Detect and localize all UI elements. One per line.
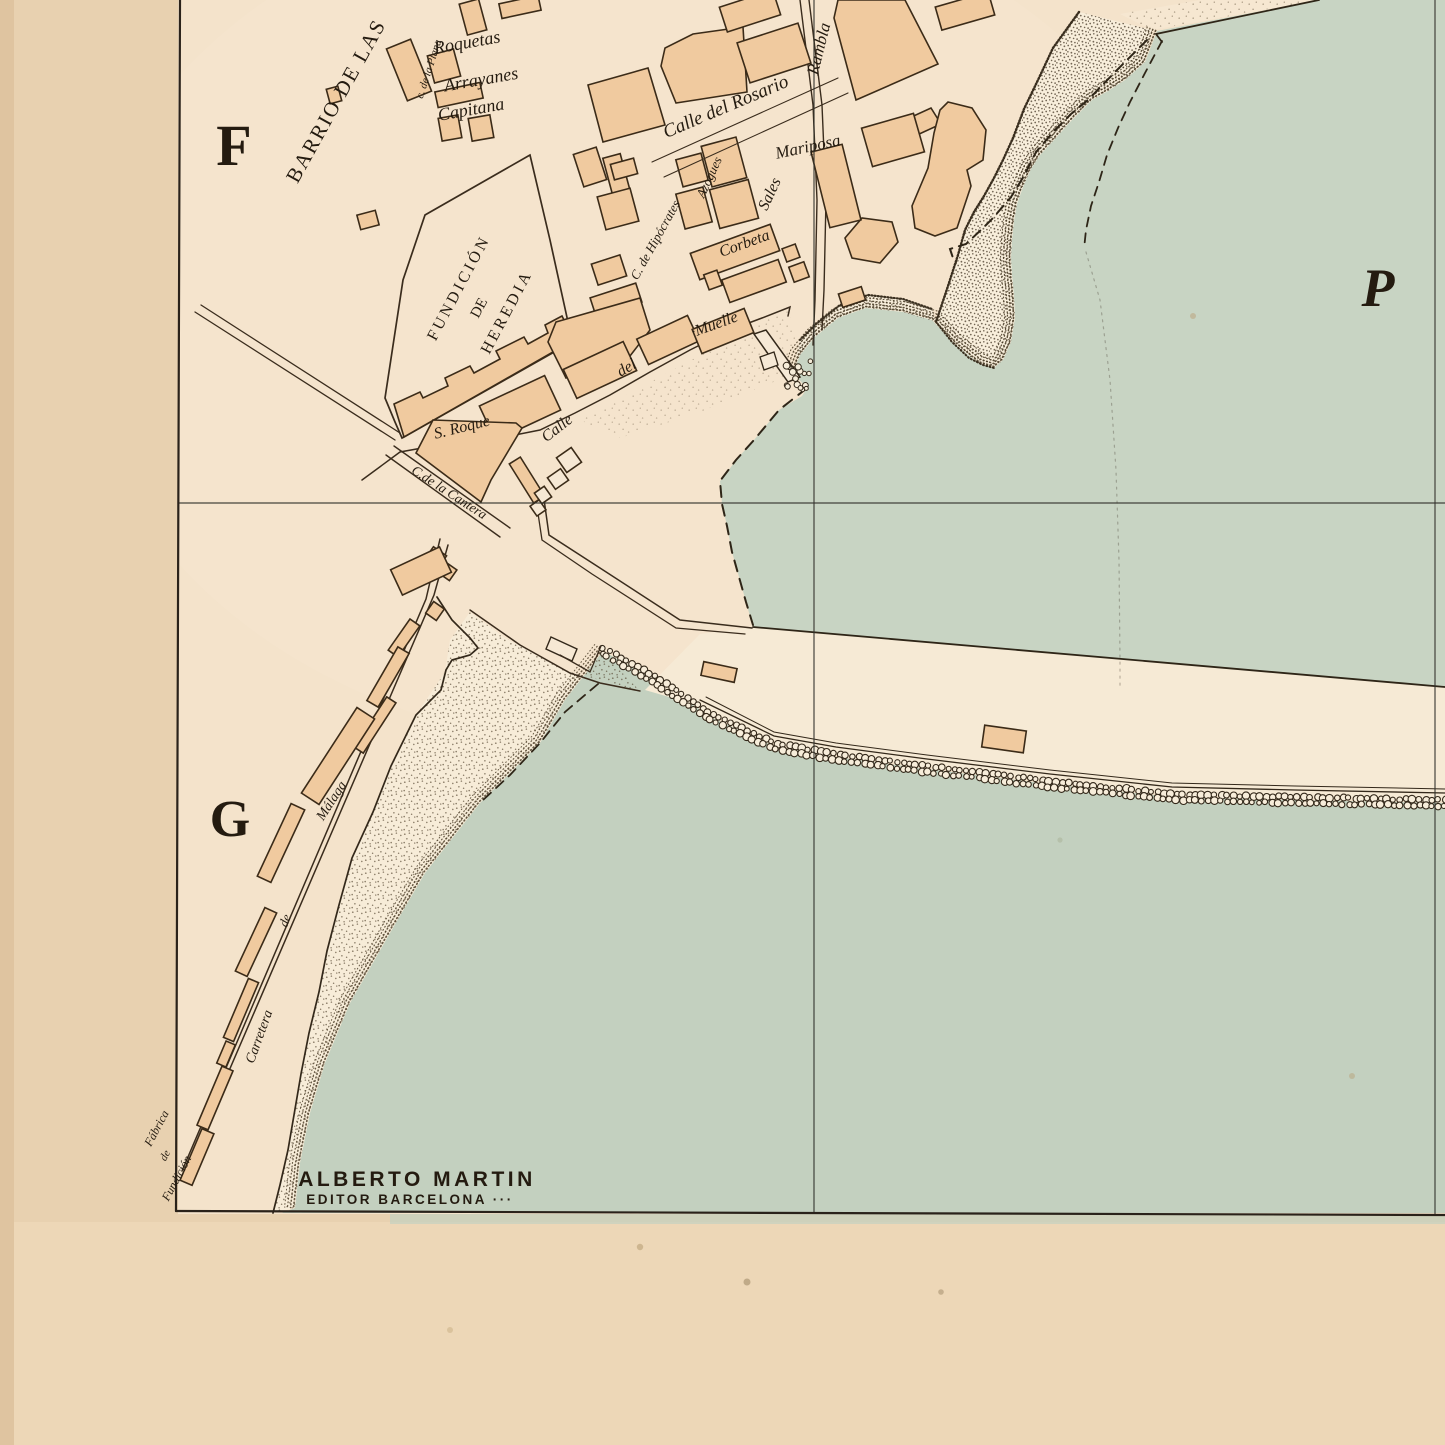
svg-text:P: P (1361, 258, 1396, 318)
svg-text:ALBERTO MARTIN: ALBERTO MARTIN (298, 1168, 536, 1191)
svg-text:G: G (210, 791, 250, 848)
svg-text:EDITOR BARCELONA ···: EDITOR BARCELONA ··· (306, 1192, 514, 1207)
svg-text:F: F (216, 113, 251, 178)
